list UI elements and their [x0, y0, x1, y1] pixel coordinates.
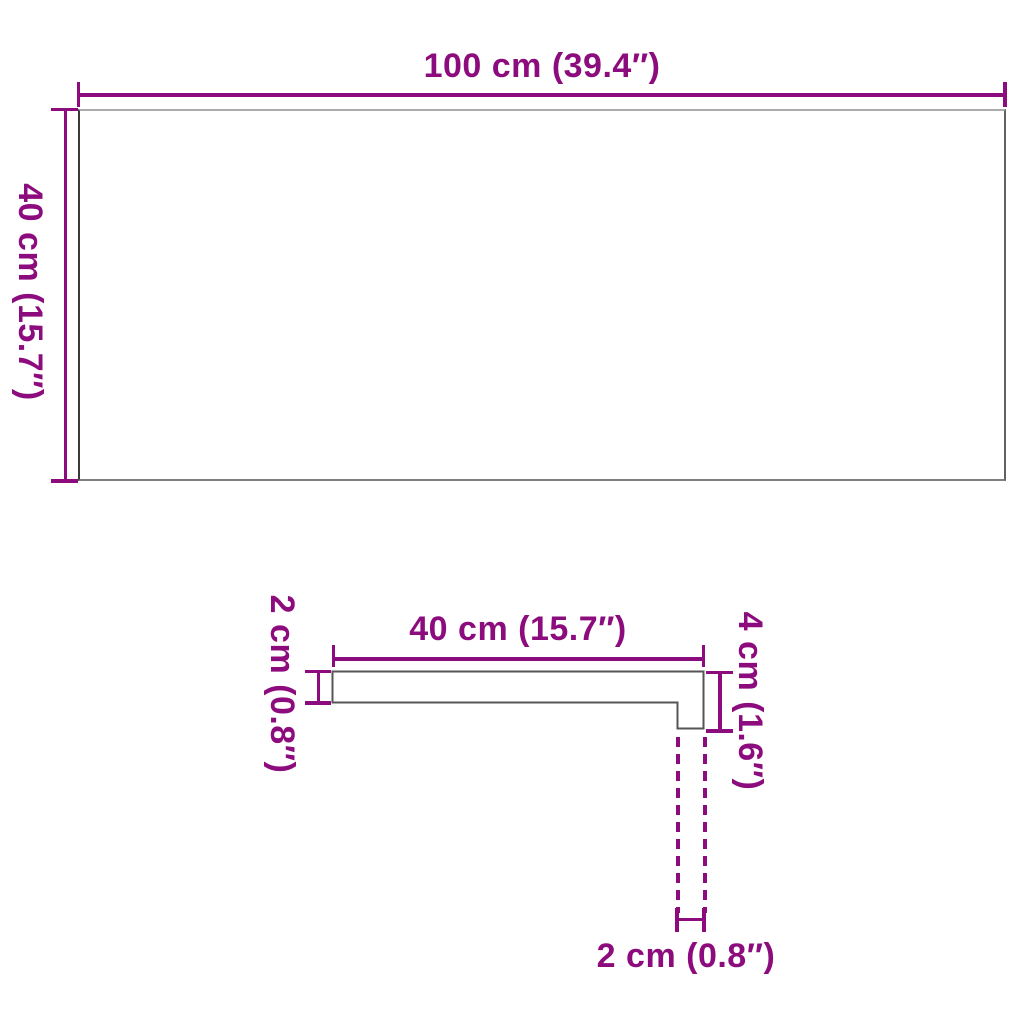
dimension-diagram: 100 cm (39.4″) 40 cm (15.7″) 40 cm (15.7… — [0, 0, 1024, 1024]
profile-nose-width-label: 2 cm (0.8″) — [597, 939, 776, 973]
profile-outline — [0, 0, 1024, 1024]
profile-length-dimension-line — [333, 657, 703, 661]
nose-projection-dashed-line-left — [676, 737, 680, 913]
profile-thickness-tick-top — [305, 670, 331, 674]
profile-length-label: 40 cm (15.7″) — [409, 612, 626, 646]
profile-height-label: 4 cm (1.6″) — [733, 612, 767, 791]
profile-length-tick-right — [702, 645, 706, 667]
profile-height-dimension-line — [718, 672, 722, 731]
profile-thickness-label: 2 cm (0.8″) — [265, 595, 299, 774]
profile-height-tick-bottom — [706, 729, 733, 733]
nose-width-dimension-line — [677, 918, 706, 922]
profile-thickness-dimension-line — [317, 671, 321, 703]
nose-projection-dashed-line-right — [703, 737, 707, 913]
profile-thickness-tick-bottom — [305, 701, 331, 705]
profile-length-tick-left — [332, 645, 336, 667]
profile-height-tick-top — [706, 671, 733, 675]
